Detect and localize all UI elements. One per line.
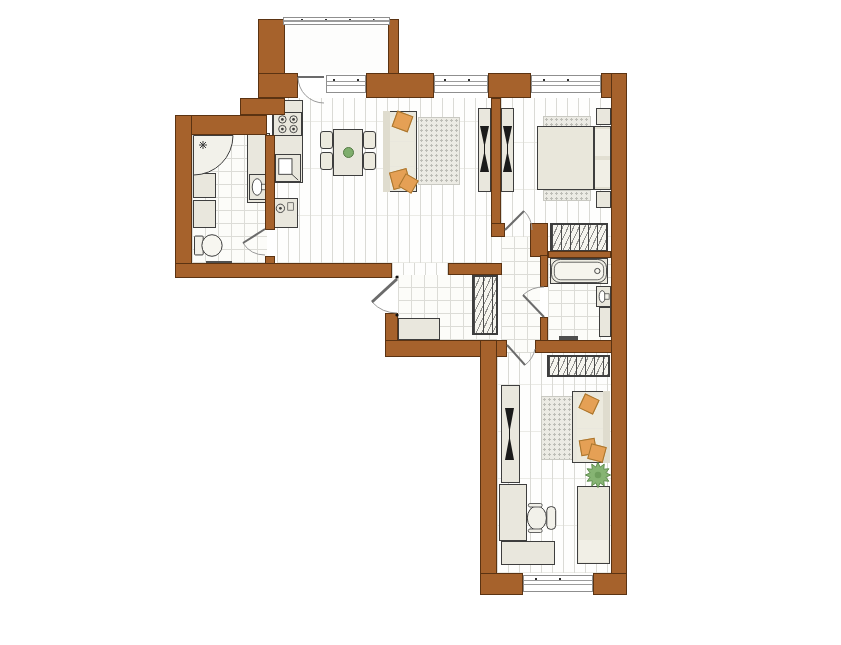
hall-bench — [398, 318, 440, 340]
balcony-window — [283, 17, 390, 25]
living-sofa-back — [383, 111, 390, 192]
bathroom2-cabinet — [599, 307, 611, 337]
nightstand-a — [596, 108, 611, 125]
living-sofa-cushion-2 — [390, 142, 414, 166]
toilet — [194, 232, 223, 259]
bathroom2-sink — [596, 286, 611, 307]
east-wall — [611, 73, 627, 595]
north-wall-a — [258, 73, 298, 98]
desk-vertical — [499, 484, 527, 541]
single-bed-pillow — [579, 540, 608, 562]
south-wall-a — [480, 573, 523, 595]
bedroom1-rug-bottom — [543, 190, 591, 201]
bathtub — [550, 258, 608, 284]
bedroom2-wardrobe — [547, 355, 610, 377]
bathroom1-cabinet-b — [193, 200, 216, 228]
bedroom1-tv — [503, 126, 512, 172]
office-chair — [525, 503, 558, 533]
kitchen-window — [326, 75, 366, 93]
north-wall-b — [366, 73, 434, 98]
bedroom1-window — [531, 75, 601, 93]
bedroom2-tv — [505, 408, 514, 460]
dining-chair-2 — [320, 152, 333, 170]
desk-horizontal — [501, 541, 555, 565]
bathroom2-door — [520, 284, 550, 320]
dining-chair-1 — [320, 131, 333, 149]
living-nook-floor — [491, 237, 501, 265]
living-window — [434, 75, 488, 93]
bedroom1-door — [500, 200, 536, 236]
stove — [273, 112, 302, 136]
dining-chair-3 — [363, 131, 376, 149]
hall-wardrobe — [472, 275, 498, 335]
living-hall-wall — [448, 263, 502, 275]
entry-door — [360, 274, 402, 318]
bedroom1-wardrobe — [550, 223, 608, 252]
living-tv — [480, 126, 489, 172]
balcony-floor — [285, 25, 388, 73]
double-bed — [537, 126, 594, 190]
kitchen-sink-unit — [275, 154, 301, 182]
bedroom2-door — [502, 341, 540, 379]
kitchen-nw-wall — [240, 98, 285, 115]
double-bed-pillow-a — [595, 129, 610, 156]
table-centerpiece — [343, 147, 354, 158]
living-rug — [418, 117, 460, 185]
bedroom2-rug — [541, 396, 573, 460]
dining-chair-4 — [363, 152, 376, 170]
plant — [585, 462, 611, 488]
bathroom2-south-wall — [535, 340, 612, 353]
balcony-door — [296, 70, 330, 106]
bathroom2-north-wall — [548, 251, 611, 258]
bathroom1-east-wall — [265, 135, 275, 230]
nightstand-b — [596, 191, 611, 208]
washing-machine — [272, 198, 298, 228]
west-wall — [175, 115, 192, 278]
bedroom2-window — [523, 575, 593, 592]
bathroom2-west-upper — [540, 255, 548, 287]
apartment-floor-plan — [0, 0, 841, 645]
balcony-wall-right — [388, 19, 399, 77]
corner-shower — [193, 135, 234, 176]
south-wall-b — [593, 573, 627, 595]
north-wall-pier — [488, 73, 531, 98]
double-bed-pillow-b — [595, 160, 610, 187]
bathroom1-cabinet-a — [193, 173, 216, 198]
wing-west-wall — [480, 340, 497, 595]
bathroom1-door — [242, 226, 276, 260]
